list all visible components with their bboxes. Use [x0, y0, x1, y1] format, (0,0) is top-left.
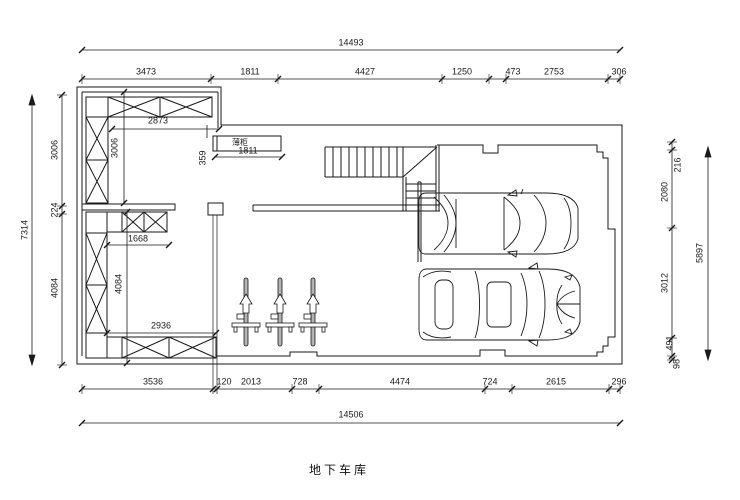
dim-thin-cabinet-gap: 359 [199, 150, 208, 165]
dim-top-segment-4: 473 [505, 68, 520, 77]
dim-right-segment-0: 216 [674, 157, 683, 172]
dim-top-segment-1: 1811 [240, 68, 259, 77]
lower-left-cabinet [86, 212, 216, 358]
dim-left-overall: 7314 [21, 220, 30, 240]
dim-right-segment-2: 3012 [661, 273, 670, 293]
thin-cabinet-label: 薄柜 [232, 139, 248, 147]
dim-bottom-segment-5: 724 [482, 378, 497, 387]
dim-right-segment-4: 98 [673, 359, 682, 369]
car-sedan-icon [419, 189, 578, 257]
dim-top-segment-6: 306 [611, 68, 626, 77]
dim-bottom-segment-7: 296 [611, 378, 626, 387]
dim-right-overall: 5897 [696, 243, 705, 263]
drawing-title: 地下车库 [309, 464, 369, 476]
dim-bottom-segment-6: 2615 [546, 378, 566, 387]
extension-line-120 [213, 215, 217, 394]
railing [253, 205, 440, 211]
dim-right-segment-3: 491 [666, 335, 675, 350]
dim-bottom-segment-2: 2013 [241, 378, 261, 387]
staircase [325, 145, 439, 211]
car-coupe-icon [419, 263, 580, 346]
dim-lower-left-height: 4084 [115, 274, 124, 294]
dim-upper-cabinet-width: 2873 [148, 117, 168, 126]
column [208, 203, 223, 215]
dim-top-segment-0: 3473 [136, 68, 156, 77]
dim-mid-cabinet-width: 1668 [128, 235, 148, 244]
dim-top-segment-3: 1250 [452, 68, 472, 77]
bicycle-icon [299, 278, 327, 346]
dim-top-segment-5: 2753 [544, 68, 564, 77]
upper-left-cabinet [86, 97, 212, 203]
dim-top-segment-2: 4427 [355, 68, 375, 77]
dim-left-segment-1: 224 [51, 202, 60, 217]
dim-bottom-segment-3: 728 [292, 378, 307, 387]
bicycle-icon [266, 278, 294, 346]
dim-bottom-cabinet-width: 2936 [151, 322, 171, 331]
dim-left-segment-0: 3006 [51, 140, 60, 160]
wall-stub [82, 204, 175, 210]
dim-upper-left-depth: 3006 [111, 138, 120, 158]
dim-thin-cabinet-width: 1811 [238, 147, 257, 156]
bicycle-icon [232, 278, 260, 346]
dim-bottom-segment-0: 3536 [143, 378, 163, 387]
bicycle-icons [232, 278, 327, 346]
dim-left-segment-2: 4084 [51, 278, 60, 298]
floor-plan-page: 14493 3473 1811 4427 1250 473 2753 306 3… [0, 0, 740, 500]
dim-bottom-segment-4: 4474 [390, 378, 410, 387]
dim-bottom-segment-1: 120 [216, 378, 231, 387]
dim-bottom-overall: 14506 [338, 411, 363, 420]
dim-top-overall: 14493 [338, 39, 363, 48]
dim-right-segment-1: 2080 [661, 182, 670, 202]
